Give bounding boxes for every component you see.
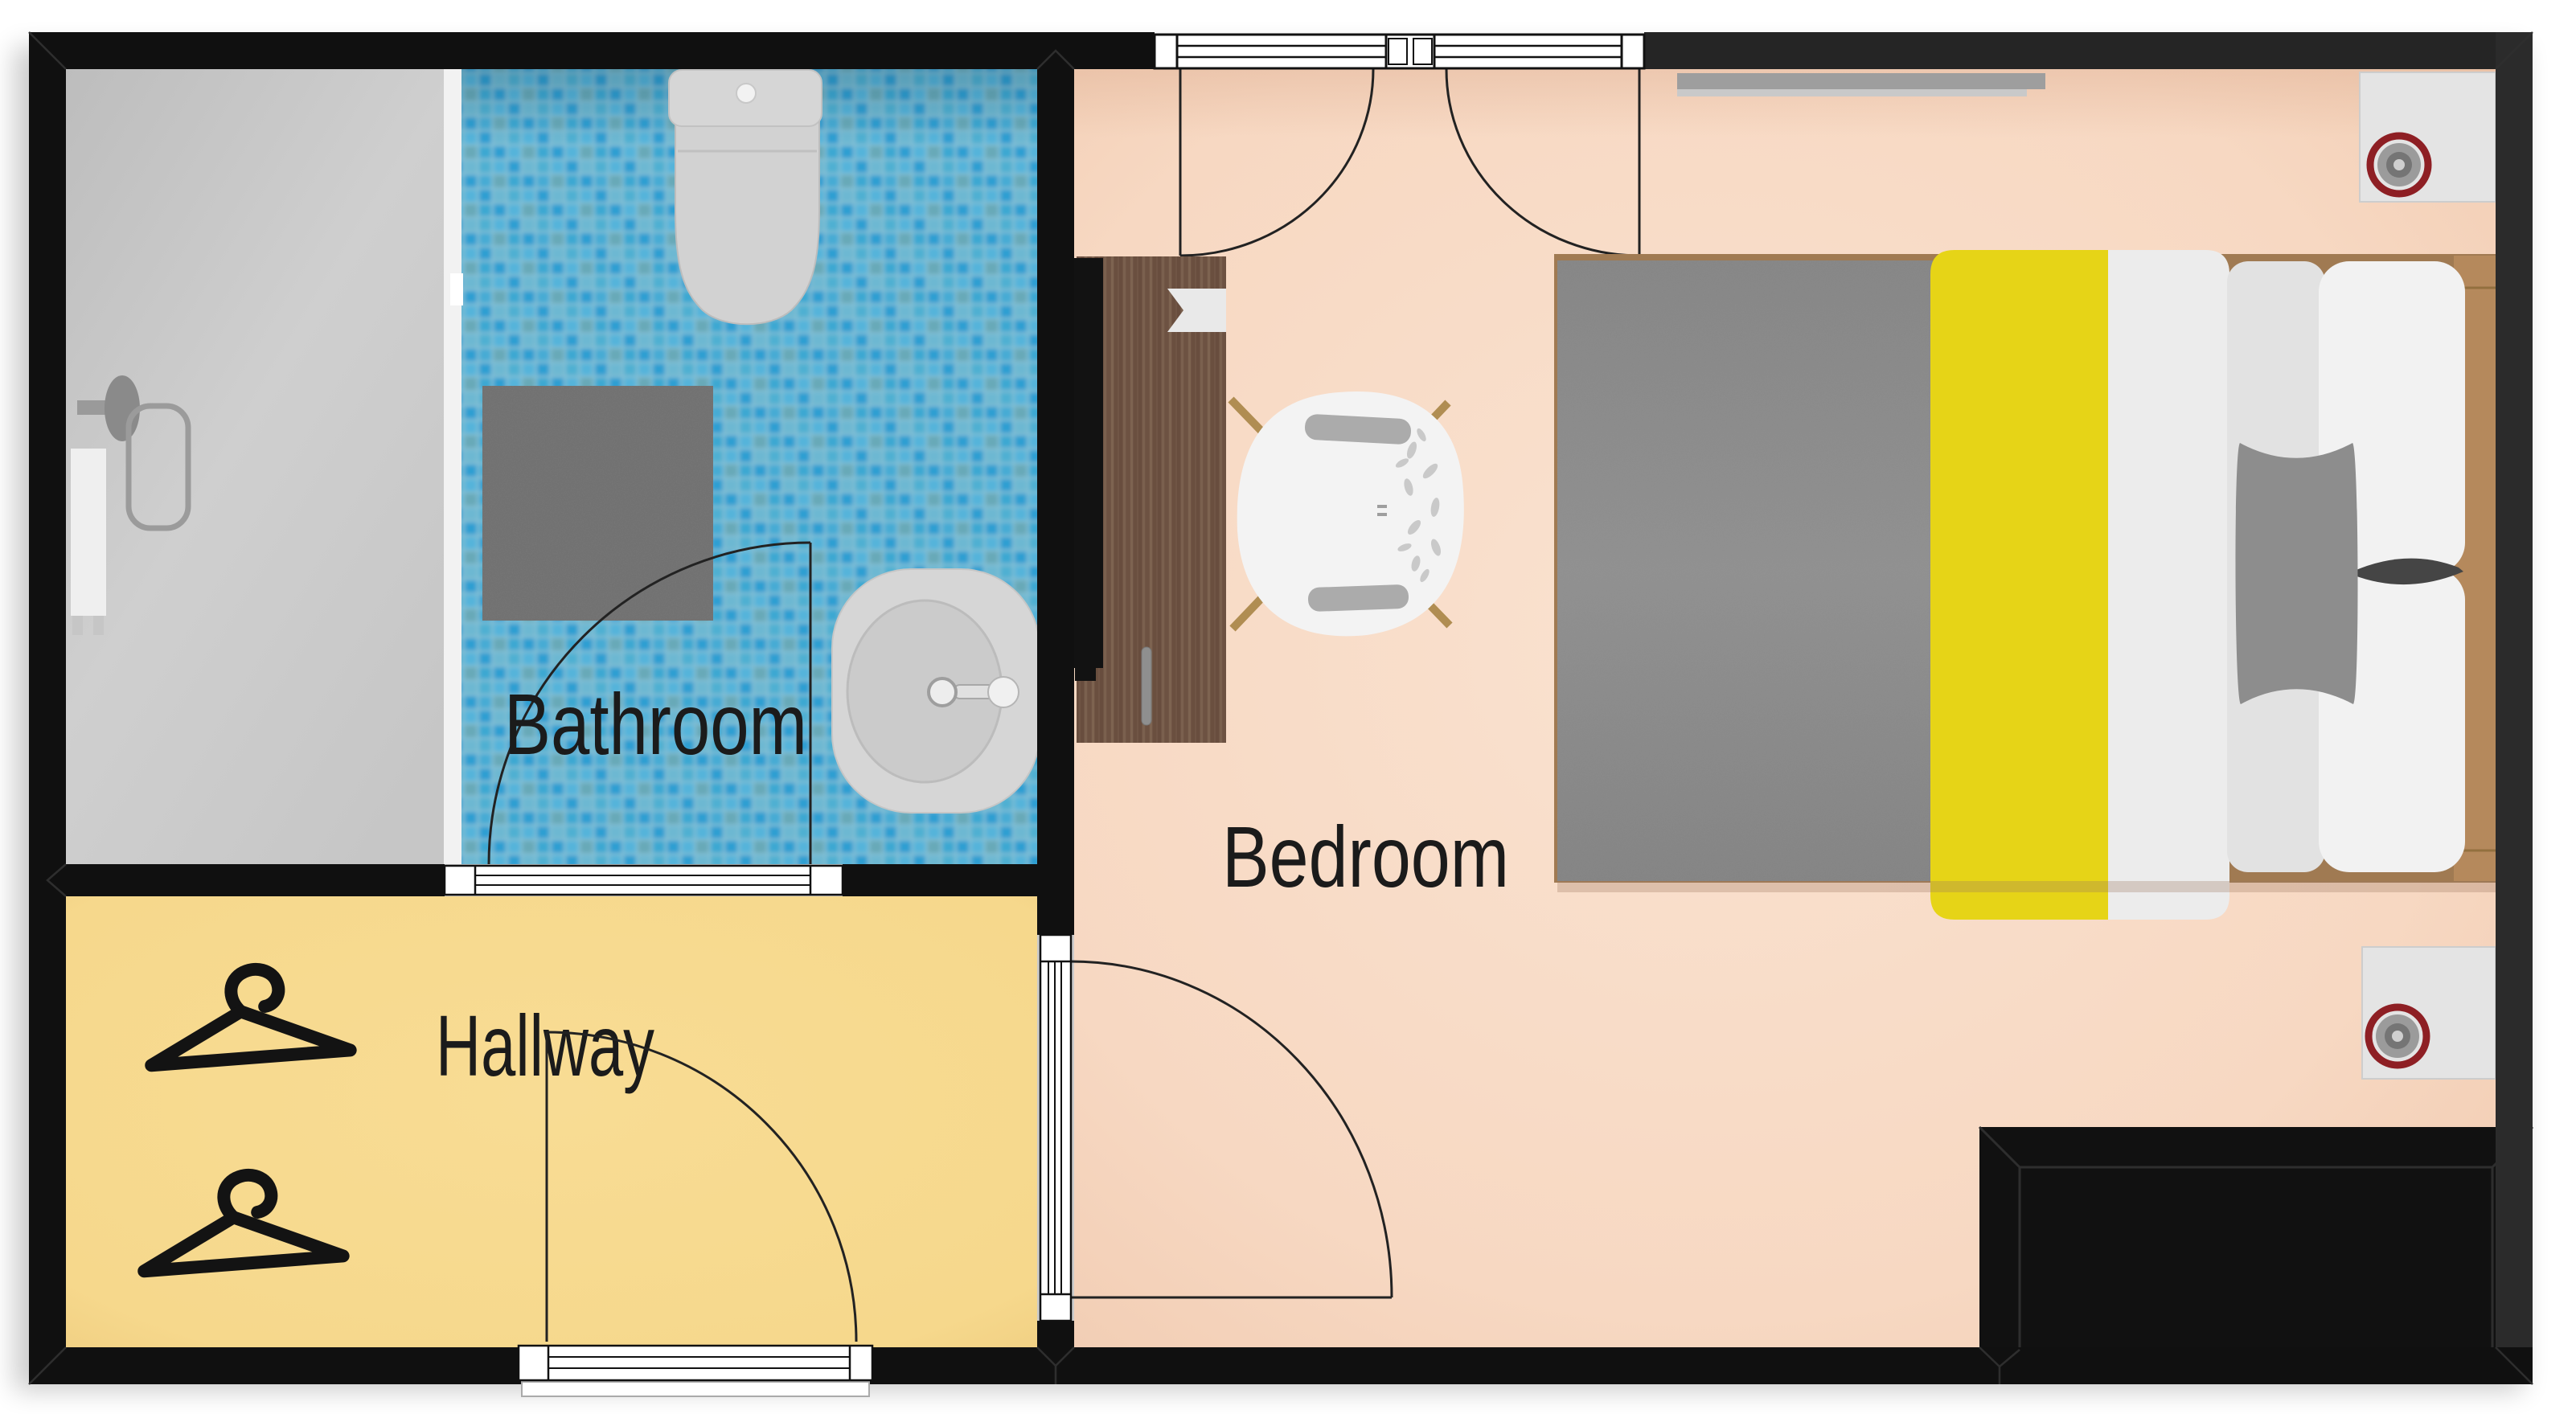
svg-text:Bedroom: Bedroom (1222, 808, 1509, 905)
svg-text:Bathroom: Bathroom (504, 675, 807, 773)
svg-text:Hallway: Hallway (436, 997, 654, 1094)
